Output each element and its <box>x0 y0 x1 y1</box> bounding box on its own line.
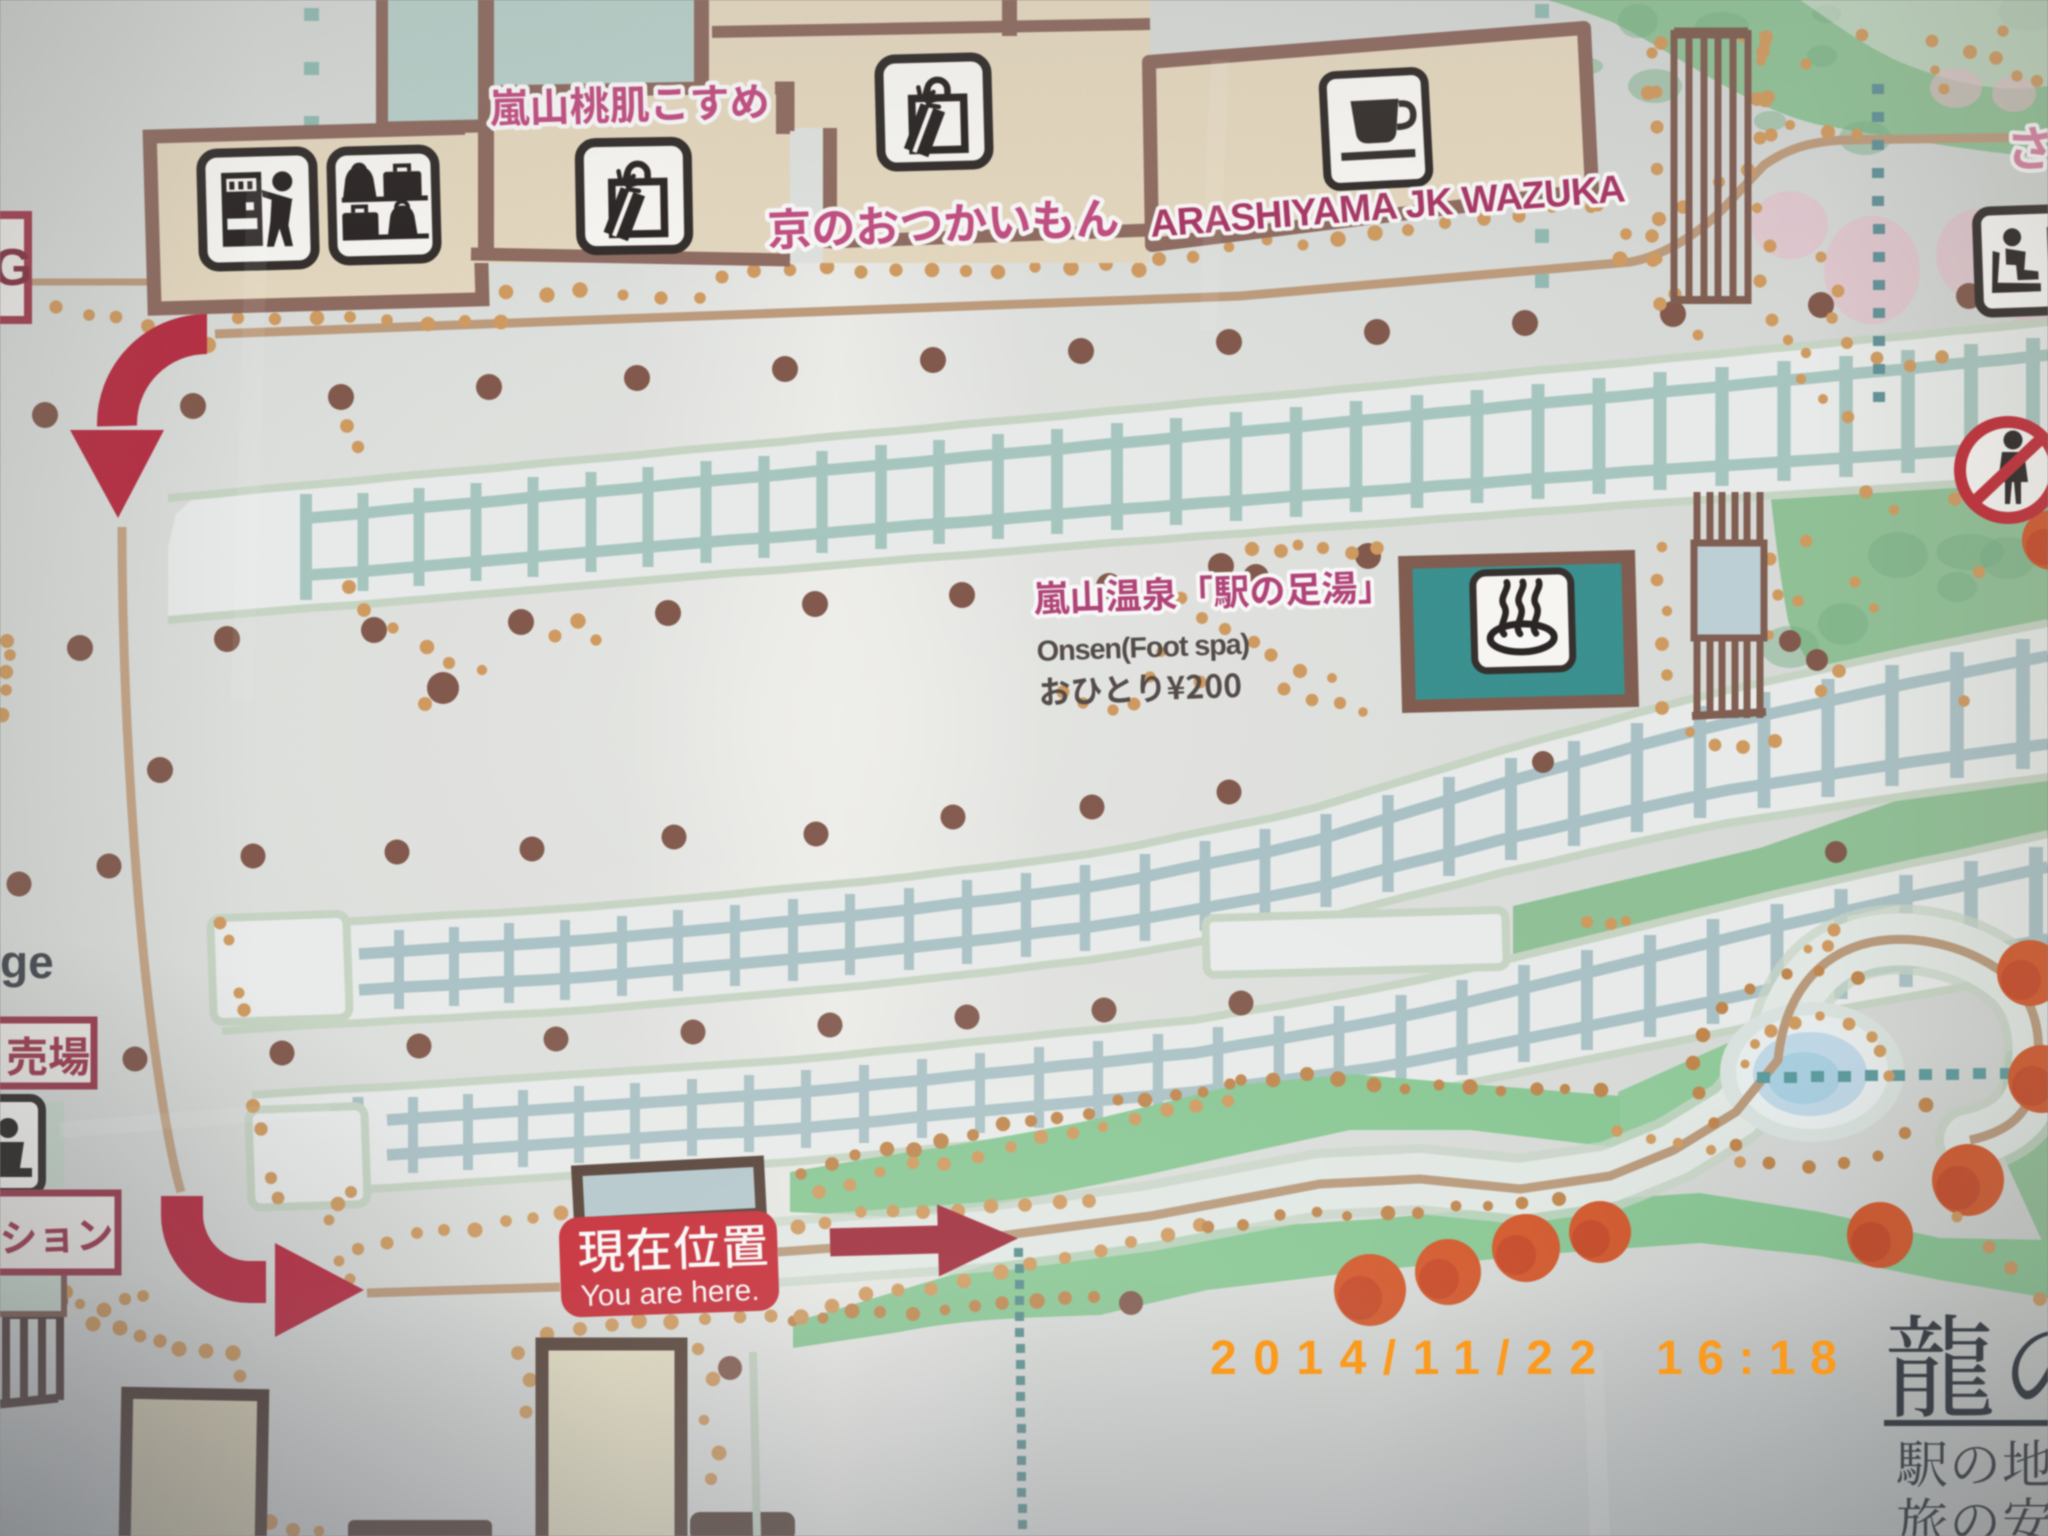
svg-text:2014/11/22: 2014/11/22 <box>1210 1332 1613 1385</box>
svg-text:16:18: 16:18 <box>1656 1332 1851 1385</box>
